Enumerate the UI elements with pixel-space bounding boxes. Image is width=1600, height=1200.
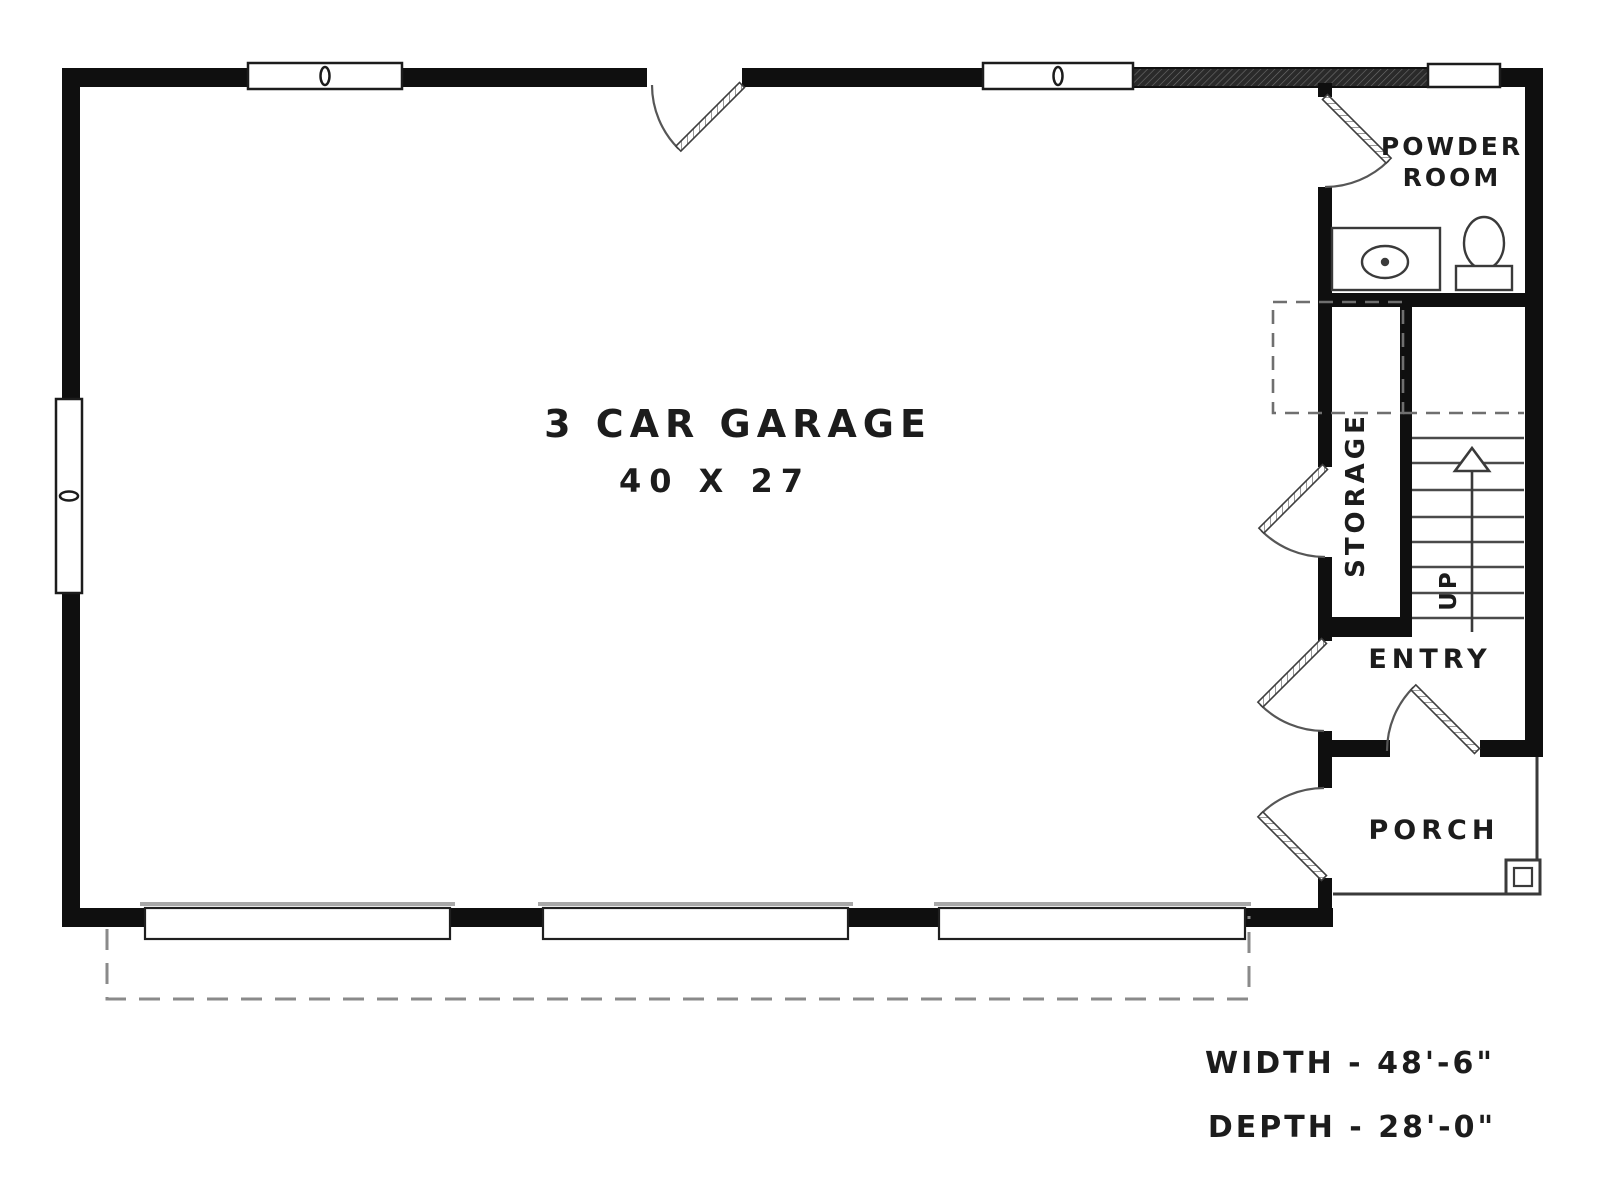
divider-wall-stub [1318,83,1332,97]
window-mullion-icon [1054,67,1063,85]
powder-room-fixtures [1332,217,1512,290]
entry-label: ENTRY [1368,644,1491,675]
storage-bottom-wall [1318,617,1412,637]
left-wall-lower [62,592,80,927]
bottom-wall-pier [450,908,543,927]
window-mullion-icon [321,67,330,85]
garage-size-label: 40 X 27 [619,462,811,500]
top-wall-segment [742,68,983,87]
divider-wall [1318,731,1332,788]
toilet-bowl-icon [1464,217,1504,269]
top-wall-hatched-segment [1133,68,1428,87]
window-mullion-icon [60,492,78,501]
garage-door-3 [939,908,1245,939]
toilet-tank-icon [1456,266,1512,290]
storage-label: STORAGE [1341,412,1371,578]
porch-label: PORCH [1369,815,1500,846]
top-wall-segment [62,68,248,87]
garage-doors [140,904,1251,939]
left-wall-upper [62,68,80,400]
width-dimension-label: WIDTH - 48'-6" [1205,1046,1495,1081]
depth-dimension-label: DEPTH - 28'-0" [1208,1110,1496,1145]
floor-plan-page: 3 CAR GARAGE 40 X 27 POWDER ROOM STORAGE… [0,0,1600,1200]
top-wall-segment [402,68,647,87]
powder-room-bottom-wall [1318,293,1543,307]
porch-post-inner [1514,868,1532,886]
entry-front-wall-left [1328,740,1390,757]
window-top-3 [1428,64,1500,87]
stairs-up-label: UP [1436,569,1462,611]
garage-door-1 [145,908,450,939]
divider-wall [1318,187,1332,467]
sink-drain-icon [1382,259,1388,265]
right-wall [1525,68,1543,757]
bottom-wall-pier [848,908,939,927]
powder-room-label-line1: POWDER [1381,132,1523,161]
divider-wall [1318,878,1332,927]
floor-plan-svg: 3 CAR GARAGE 40 X 27 POWDER ROOM STORAGE… [0,0,1600,1200]
bottom-wall-left-corner [62,908,145,927]
garage-door-2 [543,908,848,939]
entry-front-wall-right [1480,740,1543,757]
garage-label: 3 CAR GARAGE [544,402,932,446]
powder-room-label-line2: ROOM [1403,163,1502,192]
